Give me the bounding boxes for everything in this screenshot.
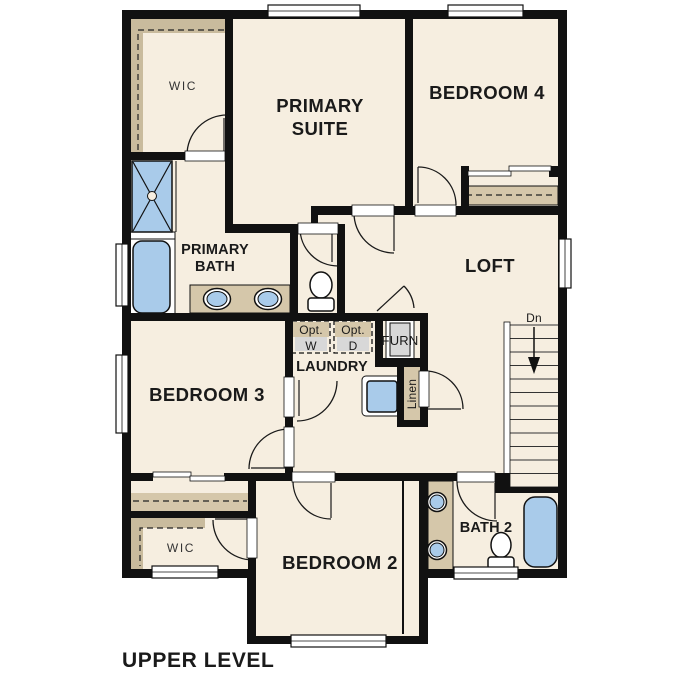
- door-jamb: [247, 518, 257, 558]
- optional-washer-label-line1: Opt.: [299, 323, 322, 337]
- window: [559, 239, 571, 288]
- laundry-sink-basin: [367, 381, 397, 412]
- bedroom3-closet-slider: [190, 476, 225, 481]
- door-jamb: [352, 205, 394, 216]
- bath2-label: BATH 2: [460, 520, 513, 536]
- wall-segment: [394, 206, 415, 215]
- wall-segment: [456, 206, 558, 215]
- door-jamb: [415, 205, 456, 216]
- wall-segment: [225, 224, 300, 233]
- furnace-label: FURN: [382, 333, 419, 348]
- window: [454, 567, 518, 579]
- bedroom4-closet-slider: [468, 171, 511, 176]
- stair-stringer: [504, 322, 510, 490]
- primary-sink-left-basin: [207, 292, 227, 307]
- window: [291, 635, 386, 647]
- stairs-down-label: Dn: [526, 311, 542, 325]
- bedroom2-label: BEDROOM 2: [282, 552, 398, 573]
- door-jamb: [457, 472, 495, 482]
- primary-suite-label-line1: PRIMARY: [276, 95, 364, 116]
- loft-label: LOFT: [465, 255, 515, 276]
- primary-bath-label-line2: BATH: [195, 259, 235, 275]
- optional-washer-label-line2: W: [305, 339, 317, 353]
- wall-segment: [248, 558, 256, 578]
- floor-plan-page: WIC PRIMARY SUITE BEDROOM 4 PRIMARY BATH…: [0, 0, 687, 687]
- floor-plan-drawing: WIC PRIMARY SUITE BEDROOM 4 PRIMARY BATH…: [0, 0, 687, 687]
- bath2-sink-bottom-basin: [430, 543, 444, 557]
- wall-segment: [397, 367, 404, 420]
- primary-wic-label: WIC: [169, 79, 197, 93]
- window: [116, 355, 128, 433]
- wall-segment: [335, 473, 457, 481]
- door-jamb: [185, 151, 225, 161]
- page-title: UPPER LEVEL: [122, 649, 274, 672]
- wall-segment: [285, 417, 293, 427]
- wall-segment: [405, 10, 413, 207]
- primary-toilet-tank: [308, 298, 334, 311]
- wall-segment: [122, 511, 256, 518]
- wall-segment: [420, 407, 428, 420]
- door-jamb: [292, 472, 335, 482]
- shower-curb: [129, 232, 175, 239]
- bedroom2-wic-shelf-left: [131, 515, 143, 569]
- wall-segment: [420, 313, 428, 371]
- primary-suite-label-line2: SUITE: [292, 118, 348, 139]
- primary-wic-shelf-left: [131, 19, 143, 152]
- wall-segment: [507, 487, 567, 493]
- bedroom3-closet-strip: [131, 493, 248, 511]
- door-jamb: [419, 371, 429, 407]
- door-jamb: [284, 427, 294, 467]
- laundry-label: LAUNDRY: [296, 359, 368, 375]
- bedroom3-label: BEDROOM 3: [149, 384, 265, 405]
- wall-segment: [225, 10, 233, 233]
- shower-drain: [148, 192, 157, 201]
- bedroom4-closet-slider: [509, 166, 551, 171]
- door-jamb: [284, 377, 294, 417]
- wall-segment: [419, 473, 428, 644]
- optional-dryer-label-line2: D: [349, 339, 358, 353]
- wall-segment: [285, 313, 293, 377]
- bedroom2-wic-label: WIC: [167, 541, 195, 555]
- wall-segment: [122, 152, 185, 160]
- wall-segment: [247, 569, 256, 644]
- bath2-tub: [524, 497, 557, 567]
- primary-sink-right-basin: [258, 292, 278, 307]
- primary-bath-label-line1: PRIMARY: [181, 242, 249, 258]
- primary-tub: [133, 241, 170, 313]
- window: [152, 566, 218, 578]
- wall-segment: [122, 473, 153, 481]
- bath2-toilet-bowl: [491, 533, 511, 558]
- optional-dryer-label-line1: Opt.: [341, 323, 364, 337]
- linen-label: Linen: [405, 379, 419, 409]
- bedroom3-closet-slider: [153, 472, 191, 477]
- wall-segment: [397, 420, 428, 427]
- bath2-sink-top-basin: [430, 495, 444, 509]
- primary-wic-shelf-top: [131, 19, 225, 33]
- wall-segment: [290, 224, 298, 315]
- window: [448, 5, 523, 17]
- primary-toilet-bowl: [310, 272, 332, 298]
- wall-segment: [224, 473, 292, 481]
- window: [268, 5, 360, 17]
- door-jamb: [298, 223, 338, 234]
- window: [116, 244, 128, 306]
- bedroom4-label: BEDROOM 4: [429, 82, 545, 103]
- wall-segment: [337, 224, 345, 315]
